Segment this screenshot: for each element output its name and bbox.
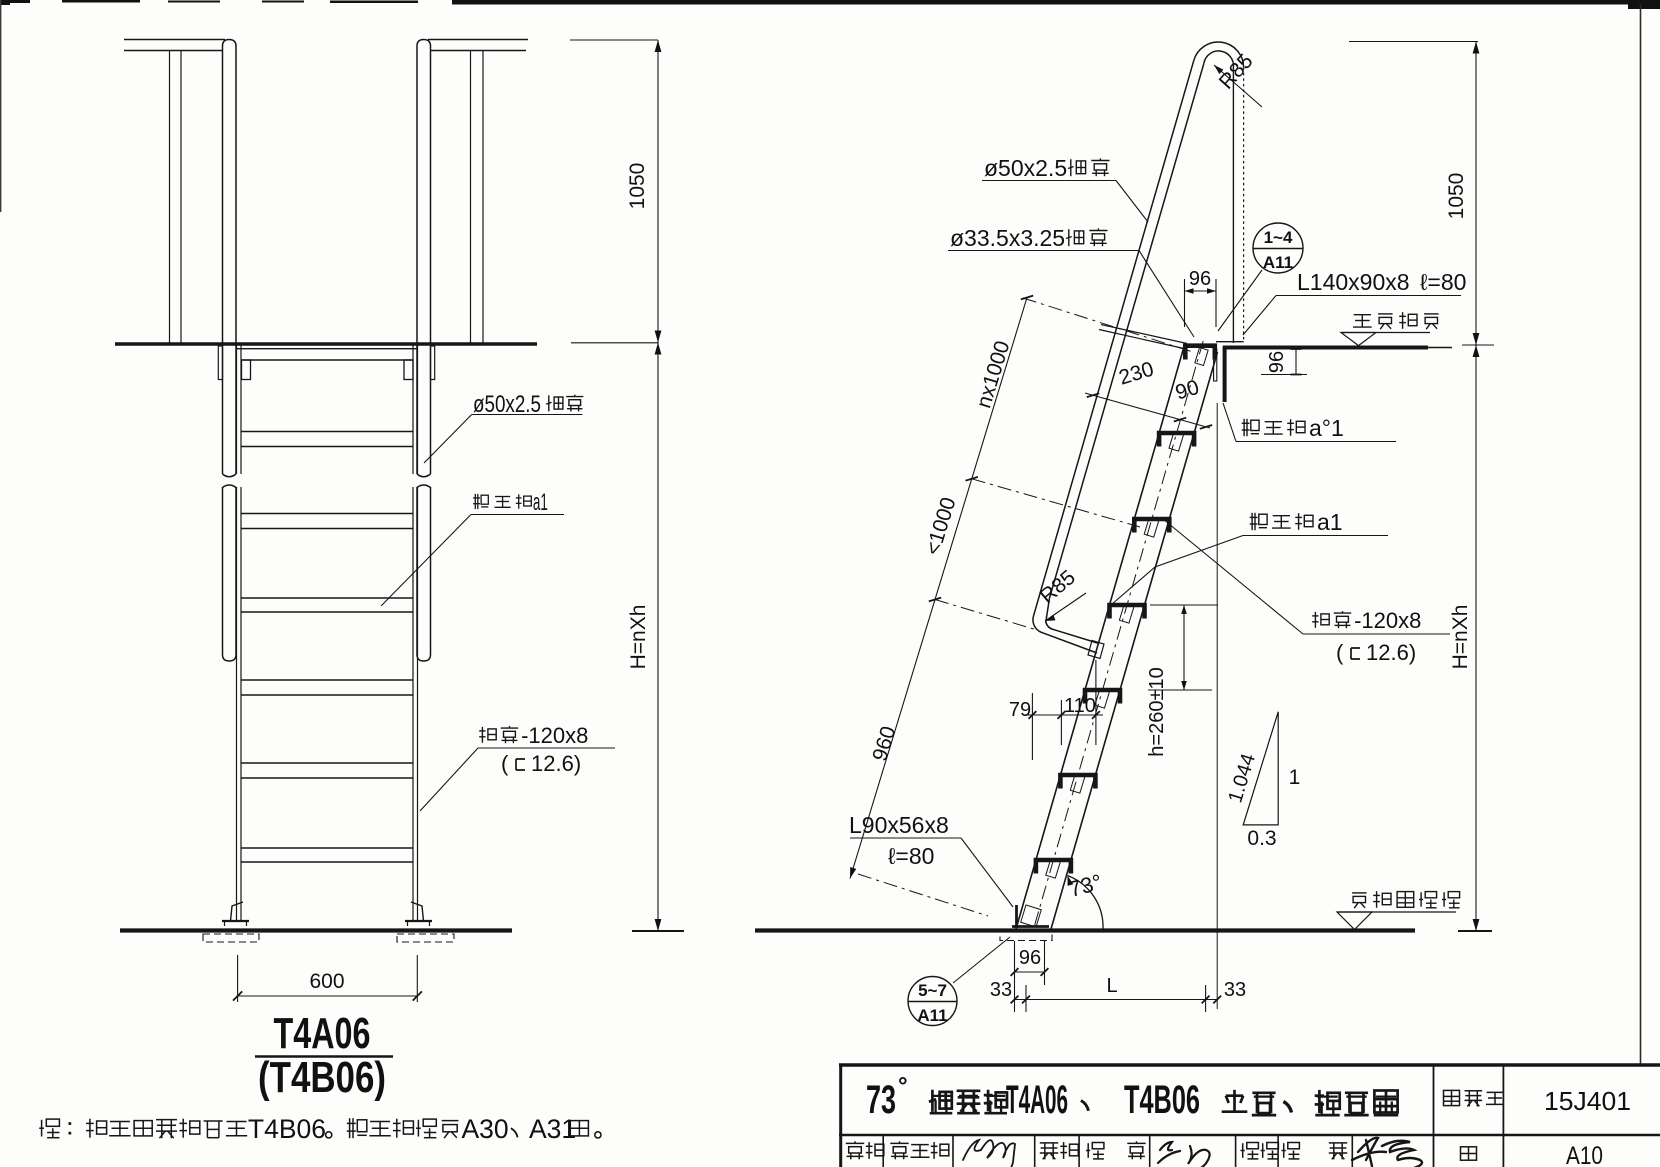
- svg-text:1~4: 1~4: [1264, 228, 1293, 247]
- svg-text:A30: A30: [462, 1114, 509, 1144]
- svg-text:a°1: a°1: [1309, 415, 1344, 441]
- svg-text:A11: A11: [917, 1006, 947, 1025]
- svg-text:-120x8: -120x8: [521, 723, 588, 748]
- svg-text:A11: A11: [1263, 253, 1293, 272]
- svg-text:15J401: 15J401: [1544, 1086, 1631, 1116]
- svg-text:600: 600: [309, 970, 344, 993]
- svg-text:a1: a1: [533, 489, 548, 516]
- svg-text:H=nXh: H=nXh: [627, 605, 650, 670]
- svg-text:12.6): 12.6): [531, 751, 581, 776]
- svg-text:96: 96: [1189, 268, 1211, 290]
- svg-text:h=260±10: h=260±10: [1146, 667, 1168, 756]
- svg-text:L90x56x8: L90x56x8: [849, 812, 949, 838]
- svg-text:T4B06: T4B06: [1124, 1078, 1200, 1122]
- svg-text:5~7: 5~7: [918, 981, 947, 1000]
- svg-text:ø50x2.5: ø50x2.5: [984, 155, 1067, 181]
- svg-text:96: 96: [1266, 351, 1288, 373]
- svg-text:T4A06: T4A06: [1006, 1078, 1068, 1122]
- svg-text:(: (: [1336, 640, 1344, 665]
- svg-text:ø33.5x3.25: ø33.5x3.25: [950, 225, 1065, 251]
- svg-text:L: L: [1106, 975, 1117, 997]
- svg-text:A10: A10: [1566, 1142, 1603, 1167]
- svg-text:96: 96: [1019, 947, 1041, 969]
- svg-text:73: 73: [866, 1078, 896, 1122]
- svg-text:110: 110: [1064, 695, 1096, 717]
- svg-text:(T4B06): (T4B06): [258, 1053, 386, 1102]
- svg-text:0.3: 0.3: [1247, 827, 1276, 850]
- svg-text:T4A06: T4A06: [274, 1009, 371, 1058]
- svg-text:A31: A31: [529, 1114, 576, 1144]
- svg-text:(: (: [501, 751, 509, 776]
- svg-text:ℓ=80: ℓ=80: [1420, 269, 1466, 295]
- svg-text:-120x8: -120x8: [1354, 608, 1421, 633]
- svg-text:°: °: [898, 1073, 908, 1100]
- svg-text:ℓ=80: ℓ=80: [888, 843, 934, 869]
- svg-text:79: 79: [1009, 699, 1031, 721]
- svg-text:12.6): 12.6): [1366, 640, 1416, 665]
- svg-text:33: 33: [990, 979, 1012, 1001]
- svg-text:L140x90x8: L140x90x8: [1297, 269, 1410, 295]
- svg-text:1: 1: [1289, 766, 1301, 789]
- svg-text:1050: 1050: [626, 163, 649, 210]
- svg-text:H=nXh: H=nXh: [1449, 605, 1472, 670]
- svg-text:1050: 1050: [1445, 173, 1468, 220]
- svg-text:T4B06: T4B06: [248, 1114, 326, 1144]
- svg-text:33: 33: [1224, 979, 1246, 1001]
- svg-text:a1: a1: [1317, 509, 1343, 535]
